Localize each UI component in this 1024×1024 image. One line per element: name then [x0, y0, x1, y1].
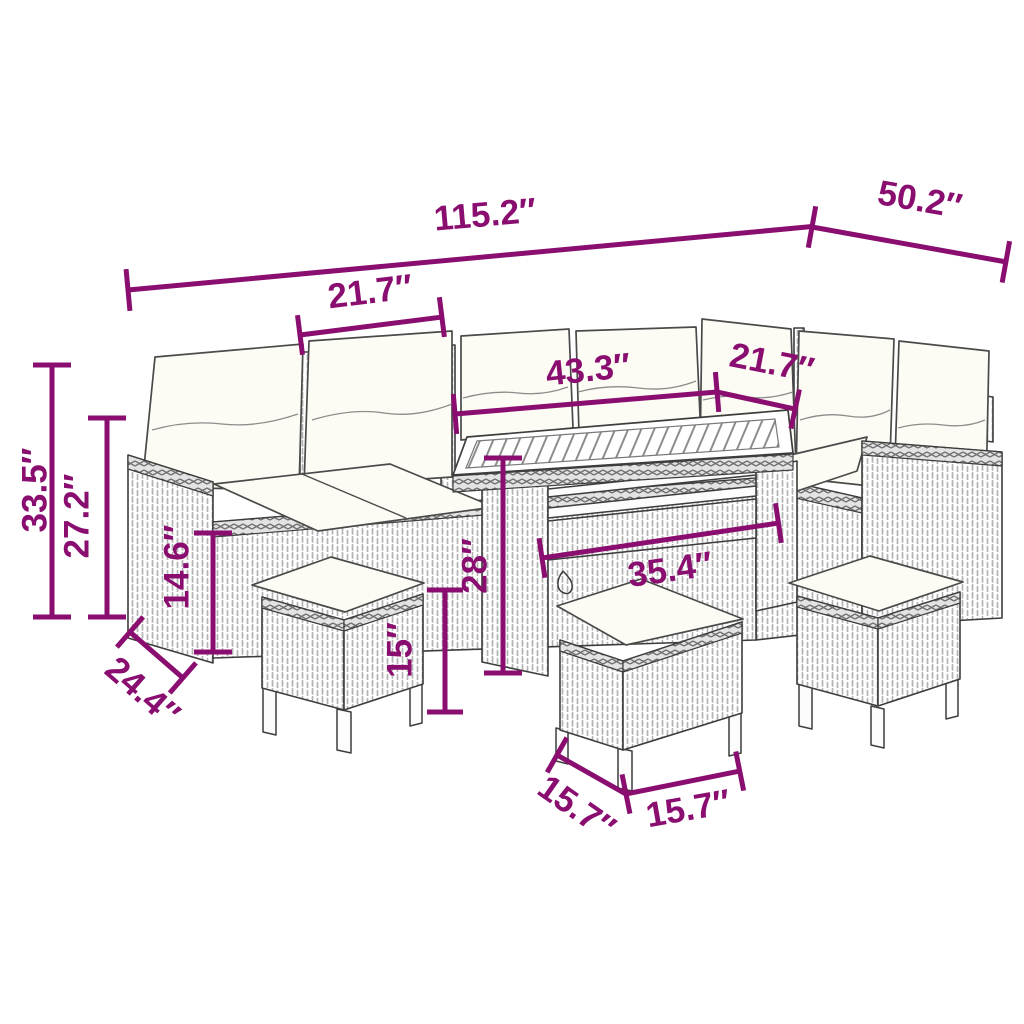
dim-label-left-seat-width: 21.7″ — [326, 267, 415, 316]
stool-leg — [871, 706, 884, 748]
dim-label-overall-width: 115.2″ — [432, 191, 538, 239]
dim-line-overall-depth — [808, 206, 1009, 282]
dim-label-stool-depth: 15.7″ — [531, 767, 623, 848]
dimension-diagram: 115.2″ 50.2″ 21.7″ 43.3″ 21.7″ 33.5″ 27.… — [0, 0, 1024, 1024]
dim-label-table-height: 28″ — [455, 538, 494, 594]
dim-label-total-height: 33.5″ — [15, 447, 54, 532]
table-right-leg-panel — [756, 461, 797, 611]
product-dimension-image: 115.2″ 50.2″ 21.7″ 43.3″ 21.7″ 33.5″ 27.… — [0, 0, 1024, 1024]
back-cushion — [304, 331, 452, 487]
stool-right — [789, 556, 963, 748]
stool-leg — [799, 684, 812, 729]
dim-label-backrest-height: 27.2″ — [57, 473, 96, 558]
stool-leg — [337, 709, 351, 753]
dim-label-stool-height: 15″ — [380, 622, 419, 678]
dim-label-overall-depth: 50.2″ — [875, 173, 966, 226]
dim-label-armrest-height: 14.6″ — [157, 524, 196, 609]
stool-center — [556, 579, 743, 791]
stool-leg — [263, 688, 276, 735]
